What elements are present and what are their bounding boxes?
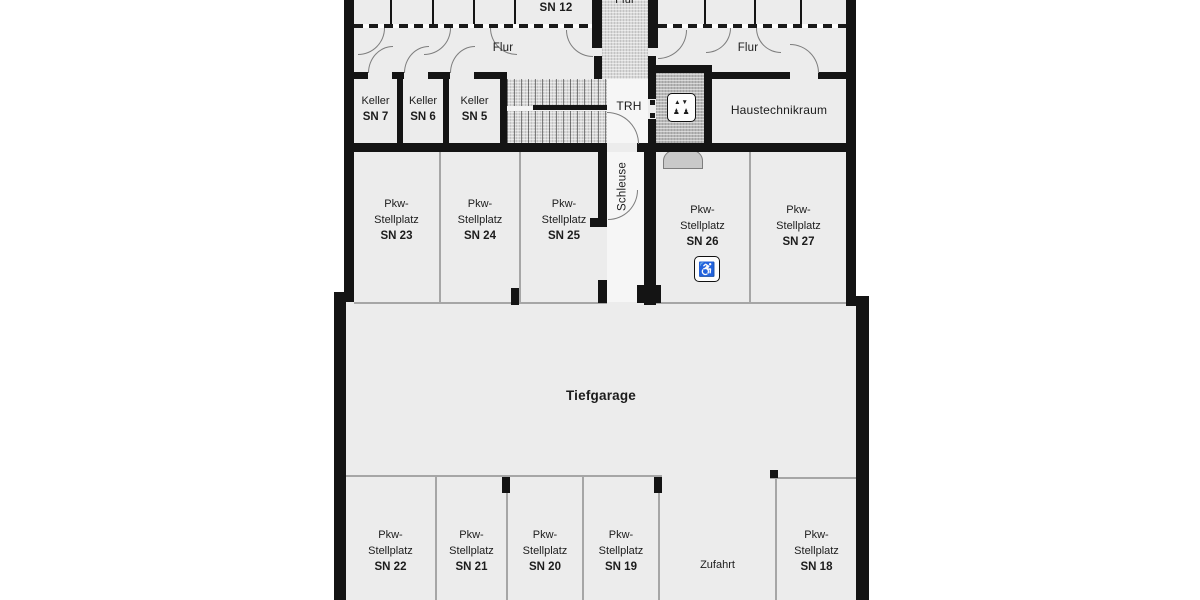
spot-line1: Pkw- (437, 527, 506, 543)
cellar-room-sn5: Keller SN 5 (449, 79, 500, 143)
spot-line2: Stellplatz (437, 543, 506, 559)
cellar-sn: SN 6 (403, 109, 443, 125)
wall-segment (648, 73, 656, 99)
wall-segment (846, 0, 856, 306)
cellar-room-sn7: Keller SN 7 (354, 79, 397, 143)
stair-steps-upper (507, 79, 607, 106)
wall-segment (473, 0, 475, 24)
cellar-type: Keller (403, 93, 443, 109)
spot-line1: Pkw- (584, 527, 658, 543)
driveway-area: Zufahrt (660, 477, 775, 600)
parking-spot-sn24: Pkw- Stellplatz SN 24 (441, 152, 519, 302)
spot-line2: Stellplatz (354, 212, 439, 228)
wall-segment (594, 56, 602, 79)
dashed-partition-wall (354, 24, 592, 28)
stair-handrail (533, 105, 607, 110)
spot-sn: SN 22 (346, 559, 435, 575)
parking-spot-sn22: Pkw- Stellplatz SN 22 (346, 477, 435, 600)
garage-top-line (656, 302, 856, 304)
wall-segment (500, 72, 507, 152)
spot-line1: Pkw- (354, 196, 439, 212)
spot-line2: Stellplatz (777, 543, 856, 559)
wall-segment (648, 65, 712, 73)
parking-spot-sn21: Pkw- Stellplatz SN 21 (437, 477, 506, 600)
cellar-sn: SN 5 (449, 109, 500, 125)
spot-sn: SN 24 (441, 228, 519, 244)
corridor-label-center: Flur (598, 0, 652, 8)
parking-spot-sn27: Pkw- Stellplatz SN 27 (751, 152, 846, 302)
center-corridor-hatch (602, 0, 648, 79)
wall-segment (644, 152, 656, 305)
wall-segment (704, 72, 790, 79)
spot-line1: Pkw- (508, 527, 582, 543)
cellar-room-sn6: Keller SN 6 (403, 79, 443, 143)
garage-top-line (354, 302, 607, 304)
spot-line2: Stellplatz (584, 543, 658, 559)
wall-segment (344, 143, 607, 152)
wall-segment (846, 296, 858, 306)
parking-spot-sn18: Pkw- Stellplatz SN 18 (777, 477, 856, 600)
spot-sn: SN 23 (354, 228, 439, 244)
elevator-people: ♟ ♟ (673, 108, 690, 116)
spot-line1: Pkw- (346, 527, 435, 543)
wall-segment (856, 296, 869, 600)
spot-line2: Stellplatz (521, 212, 607, 228)
wall-segment (432, 0, 434, 24)
wall-segment (818, 72, 846, 79)
cellar-type: Keller (449, 93, 500, 109)
spot-sn: SN 19 (584, 559, 658, 575)
spot-line1: Pkw- (656, 202, 749, 218)
elevator-icon: ▲▼ ♟ ♟ (667, 93, 696, 122)
dashed-partition-wall (658, 24, 846, 28)
elevator-arrows: ▲▼ (674, 100, 689, 107)
spot-line2: Stellplatz (346, 543, 435, 559)
stair-steps-lower (507, 111, 607, 143)
parking-spot-sn19: Pkw- Stellplatz SN 19 (584, 477, 658, 600)
stairwell-label: TRH (607, 99, 651, 114)
wall-segment (800, 0, 802, 24)
spot-line1: Pkw- (777, 527, 856, 543)
spot-line2: Stellplatz (751, 218, 846, 234)
wall-segment (428, 72, 450, 79)
utility-room-label: Haustechnikraum (712, 103, 846, 118)
wall-segment (514, 0, 516, 24)
parking-spot-sn26: Pkw- Stellplatz SN 26 (656, 152, 749, 302)
spot-sn: SN 26 (656, 234, 749, 250)
parking-spot-sn23: Pkw- Stellplatz SN 23 (354, 152, 439, 302)
spot-sn: SN 27 (751, 234, 846, 250)
corridor-label-right: Flur (723, 41, 773, 56)
garage-label: Tiefgarage (346, 388, 856, 403)
spot-line1: Pkw- (751, 202, 846, 218)
wall-segment (754, 0, 756, 24)
corridor-label-left: Flur (478, 41, 528, 56)
parking-spot-sn25: Pkw- Stellplatz SN 25 (521, 152, 607, 302)
spot-sn: SN 20 (508, 559, 582, 575)
spot-sn: SN 21 (437, 559, 506, 575)
driveway-label: Zufahrt (660, 557, 775, 573)
airlock-label: Schleuse (616, 147, 631, 227)
cellar-type: Keller (354, 93, 397, 109)
wall-segment (392, 72, 404, 79)
wall-segment (334, 292, 354, 302)
wall-segment (704, 73, 712, 152)
spot-sn: SN 18 (777, 559, 856, 575)
spot-line2: Stellplatz (656, 218, 749, 234)
wall-segment (704, 0, 706, 24)
spot-line1: Pkw- (521, 196, 607, 212)
wall-segment (344, 72, 368, 79)
wall-segment (334, 292, 346, 600)
wall-segment (637, 143, 856, 152)
cellar-sn: SN 7 (354, 109, 397, 125)
spot-sn: SN 25 (521, 228, 607, 244)
spot-line2: Stellplatz (508, 543, 582, 559)
spot-line2: Stellplatz (441, 212, 519, 228)
wall-segment (390, 0, 392, 24)
floorplan-canvas: ▲▼ ♟ ♟ ♿ SN 12 Flur Flur Flur TRH Hauste… (0, 0, 1200, 600)
parking-spot-sn20: Pkw- Stellplatz SN 20 (508, 477, 582, 600)
room-label-sn12: SN 12 (520, 1, 592, 16)
spot-line1: Pkw- (441, 196, 519, 212)
